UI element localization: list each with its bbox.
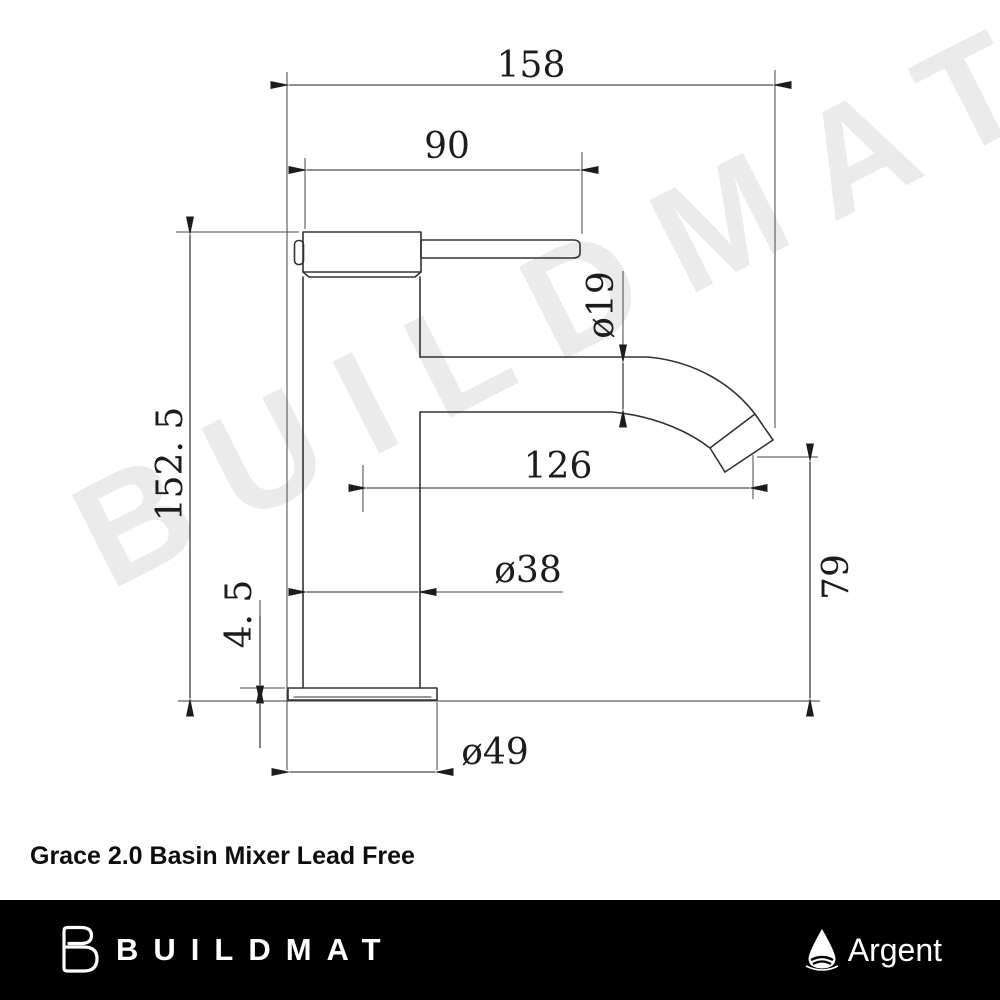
handle-lever [421, 240, 580, 258]
spout-aerator-ring [710, 414, 755, 448]
buildmat-logo-icon [54, 922, 104, 978]
spout-end-face [725, 440, 773, 472]
buildmat-brand-text: BUILDMAT [116, 932, 396, 968]
dim-label-outlet-height: 79 [816, 554, 857, 600]
product-drawing-page: BUILDMAT [0, 0, 1000, 1000]
product-title: Grace 2.0 Basin Mixer Lead Free [30, 842, 930, 871]
base-plate [288, 688, 437, 700]
dimension-lines [190, 85, 810, 772]
handle-side-button [295, 241, 304, 265]
technical-drawing: 158 90 ø19 126 ø38 4. 5 79 ø49 152. 5 [0, 0, 1000, 900]
dim-label-spout-reach: 126 [524, 446, 593, 487]
dim-label-spout-diameter: ø19 [581, 271, 622, 338]
handle-housing [303, 232, 421, 272]
footer-bar: BUILDMAT Argent [0, 900, 1000, 1000]
dim-label-body-diameter: ø38 [494, 550, 561, 591]
dim-label-total-projection: 158 [497, 45, 566, 86]
dim-label-base-diameter: ø49 [461, 732, 528, 773]
extension-lines [176, 70, 818, 770]
argent-logo-icon [802, 926, 842, 974]
dim-label-base-height: 4. 5 [219, 580, 260, 649]
argent-brand-text: Argent [848, 932, 942, 969]
argent-brand: Argent [802, 926, 942, 974]
buildmat-brand: BUILDMAT [54, 922, 396, 978]
dim-label-total-height: 152. 5 [150, 407, 191, 522]
spout-top-edge [420, 357, 773, 440]
dim-label-handle-length: 90 [424, 126, 470, 167]
